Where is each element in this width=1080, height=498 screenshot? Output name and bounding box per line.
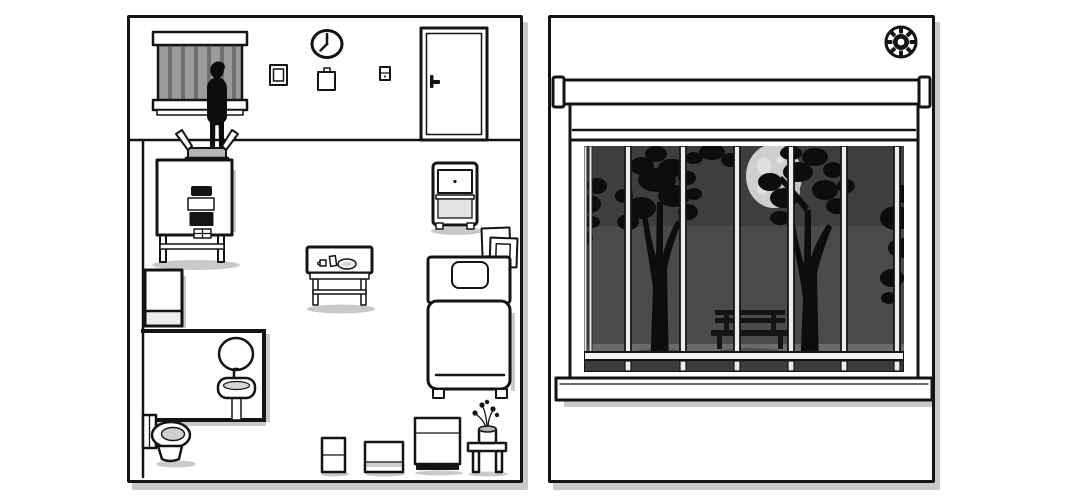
appliance-stand[interactable] <box>152 160 240 270</box>
barred-window[interactable] <box>153 32 247 115</box>
room-map-drawing <box>130 18 520 480</box>
window-view-drawing <box>551 18 932 480</box>
side-table[interactable] <box>307 247 375 314</box>
bathroom-mirror[interactable] <box>219 338 253 370</box>
door[interactable] <box>421 28 487 140</box>
bottom-pane-row <box>584 360 904 372</box>
bed[interactable] <box>428 257 515 398</box>
card[interactable] <box>329 256 336 267</box>
wall-clock[interactable] <box>312 31 342 58</box>
window-view-panel[interactable] <box>548 15 935 483</box>
settings-gear-icon[interactable] <box>886 27 917 58</box>
flat-box[interactable] <box>365 442 405 477</box>
room-map-panel <box>127 15 523 483</box>
blind-cap-left <box>553 77 564 107</box>
tall-cabinet[interactable] <box>145 270 186 328</box>
wall-notepad[interactable] <box>318 68 335 90</box>
window-sill <box>556 378 932 407</box>
potted-plant[interactable] <box>472 400 499 443</box>
blind-shade[interactable] <box>570 102 918 140</box>
rolling-cart[interactable] <box>431 163 483 235</box>
blind-roller <box>558 80 928 104</box>
blind-cap-right <box>919 77 930 107</box>
plant-stool[interactable] <box>468 400 508 477</box>
pedestal-sink[interactable] <box>218 369 255 420</box>
small-picture-frame[interactable] <box>270 65 287 85</box>
roller-blind[interactable] <box>553 77 930 140</box>
light-switch[interactable] <box>380 67 390 80</box>
plate[interactable] <box>338 259 356 269</box>
small-box[interactable] <box>321 438 349 477</box>
storage-box[interactable] <box>415 418 463 476</box>
night-scene[interactable] <box>575 144 916 372</box>
game-screen <box>0 0 1080 498</box>
